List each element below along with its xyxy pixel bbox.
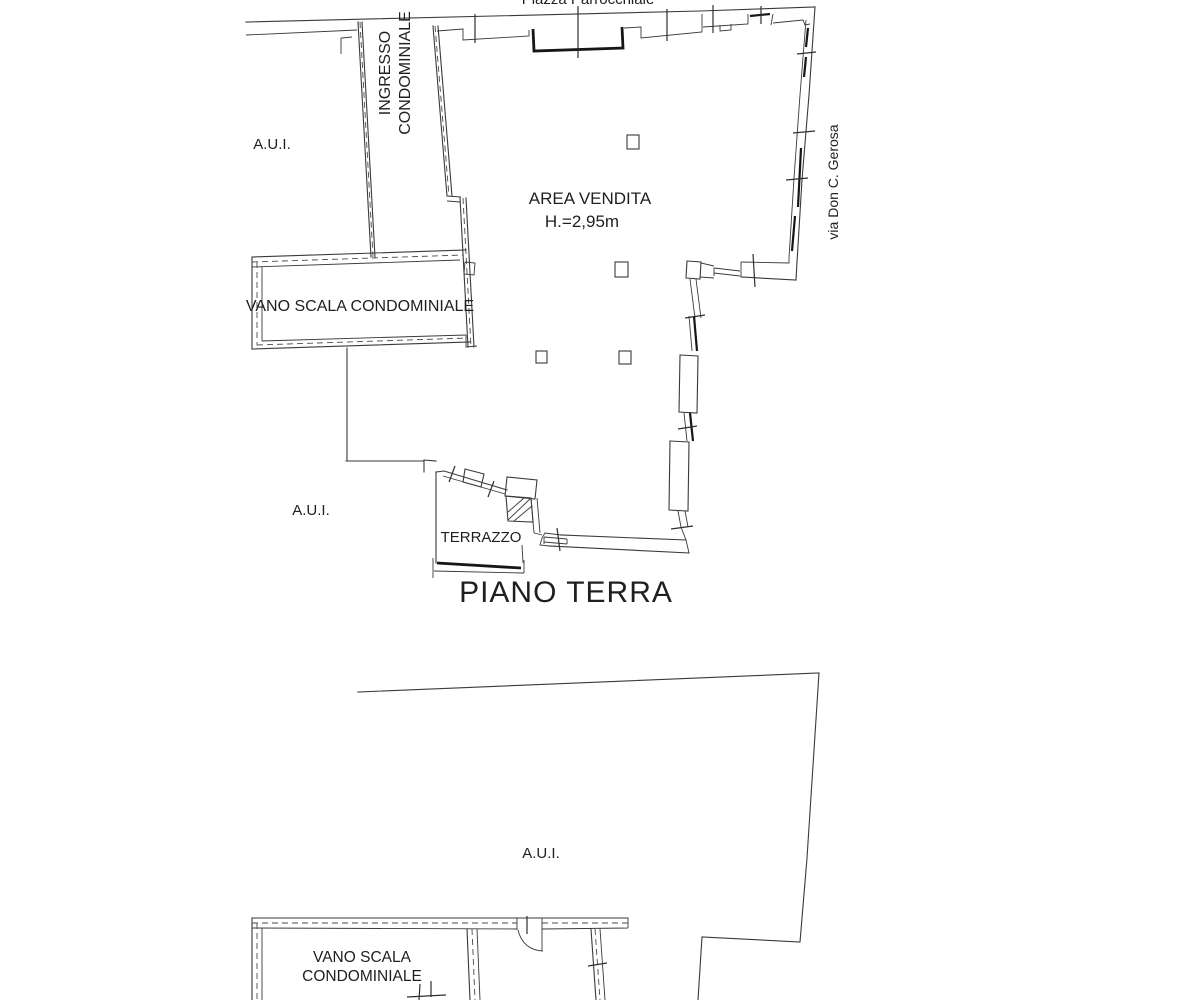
stairwell-label: VANO SCALA CONDOMINIALE [246, 298, 474, 315]
south-wall [540, 528, 689, 553]
sales-area-label: AREA VENDITA [529, 189, 652, 208]
top-plan: Piazza Parrocchiale INGRESSO CONDOMINIAL… [246, 0, 841, 609]
column [619, 351, 631, 364]
column [536, 351, 547, 363]
adjacent-unit-label: A.U.I. [522, 845, 560, 862]
door-swing [518, 916, 543, 951]
north-facade-wall [246, 5, 815, 58]
west-nook-boundary [346, 348, 436, 472]
street-label-gerosa: via Don C. Gerosa [825, 124, 841, 239]
column [615, 262, 628, 277]
stairwell-label-line2: CONDOMINIALE [302, 968, 422, 985]
east-return-wall [686, 254, 797, 287]
stairwell-label-line1: VANO SCALA [313, 949, 412, 966]
street-label-piazza: Piazza Parrocchiale [522, 0, 655, 8]
stairwell-room-walls [252, 918, 628, 1000]
corridor-label-line2: CONDOMINIALE [397, 11, 414, 135]
column [627, 135, 639, 149]
bottom-plan: A.U.I. VANO SCALA CONDOMINIALE [252, 673, 819, 1000]
plan-title: PIANO TERRA [459, 576, 673, 609]
terrace-walls [433, 466, 542, 578]
terrace-label: TERRAZZO [441, 529, 522, 546]
adjacent-unit-label-bottom: A.U.I. [292, 502, 330, 519]
outline [358, 673, 819, 1000]
east-facade-wall [786, 7, 816, 262]
east-boundary-wall [669, 279, 705, 540]
adjacent-unit-label-top: A.U.I. [253, 136, 291, 153]
sales-area-columns [536, 135, 639, 364]
corridor-label-line1: INGRESSO [377, 31, 394, 115]
floor-plan-page: Piazza Parrocchiale INGRESSO CONDOMINIAL… [0, 0, 1200, 1000]
floor-plan-drawing: Piazza Parrocchiale INGRESSO CONDOMINIAL… [0, 0, 1200, 1000]
sales-area-height-label: H.=2,95m [545, 212, 619, 231]
inner-partition-wall [588, 929, 607, 1000]
